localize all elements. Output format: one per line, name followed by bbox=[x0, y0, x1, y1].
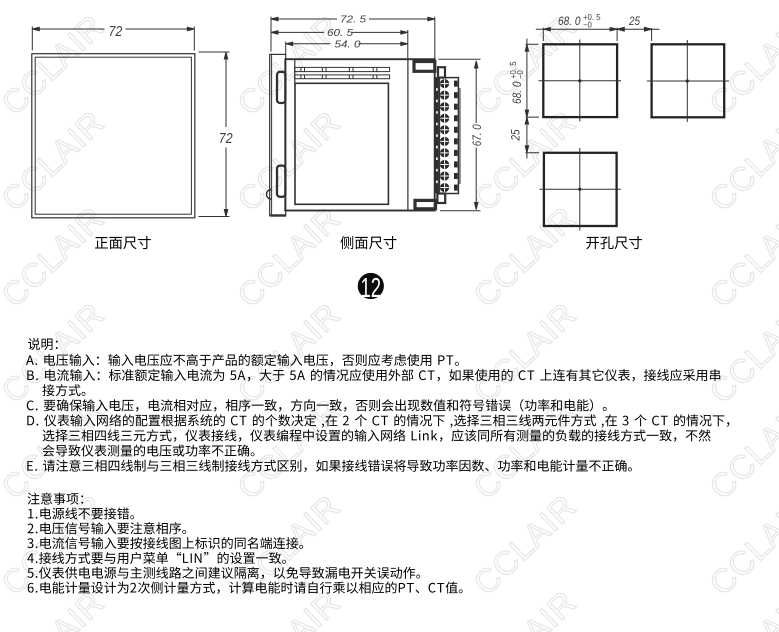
svg-text:CCLAIR: CCLAIR bbox=[0, 7, 111, 122]
svg-text:CCLAIR: CCLAIR bbox=[466, 487, 583, 602]
svg-text:68. 0: 68. 0 bbox=[512, 81, 524, 104]
svg-text:60. 5: 60. 5 bbox=[327, 27, 353, 39]
svg-text:54. 0: 54. 0 bbox=[335, 39, 361, 51]
svg-text:CCLAIR: CCLAIR bbox=[702, 295, 779, 410]
svg-text:12: 12 bbox=[361, 272, 382, 303]
svg-text:25: 25 bbox=[511, 129, 523, 141]
svg-text:CCLAIR: CCLAIR bbox=[702, 487, 779, 602]
svg-text:CCLAIR: CCLAIR bbox=[230, 199, 347, 314]
svg-text:CCLAIR: CCLAIR bbox=[230, 7, 347, 122]
svg-text:CCLAIR: CCLAIR bbox=[702, 103, 779, 218]
svg-text:72: 72 bbox=[109, 24, 123, 40]
svg-text:−0: −0 bbox=[516, 69, 525, 79]
svg-text:CCLAIR: CCLAIR bbox=[702, 199, 779, 314]
svg-text:CCLAIR: CCLAIR bbox=[230, 103, 347, 218]
svg-text:CCLAIR: CCLAIR bbox=[0, 295, 111, 410]
svg-text:CCLAIR: CCLAIR bbox=[0, 103, 111, 218]
svg-text:CCLAIR: CCLAIR bbox=[466, 295, 583, 410]
svg-text:25: 25 bbox=[628, 16, 640, 28]
svg-text:68. 0: 68. 0 bbox=[558, 16, 581, 28]
svg-text:CCLAIR: CCLAIR bbox=[702, 7, 779, 122]
svg-text:72: 72 bbox=[219, 131, 233, 147]
svg-text:CCLAIR: CCLAIR bbox=[0, 199, 111, 314]
svg-text:CCLAIR: CCLAIR bbox=[230, 295, 347, 410]
svg-text:CCLAIR: CCLAIR bbox=[702, 583, 779, 632]
svg-text:CCLAIR: CCLAIR bbox=[0, 391, 111, 506]
svg-text:CCLAIR: CCLAIR bbox=[702, 391, 779, 506]
svg-text:72. 5: 72. 5 bbox=[340, 14, 366, 26]
svg-text:CCLAIR: CCLAIR bbox=[466, 103, 583, 218]
svg-text:CCLAIR: CCLAIR bbox=[466, 199, 583, 314]
svg-text:−0: −0 bbox=[583, 21, 593, 30]
svg-text:67. 0: 67. 0 bbox=[472, 124, 484, 147]
